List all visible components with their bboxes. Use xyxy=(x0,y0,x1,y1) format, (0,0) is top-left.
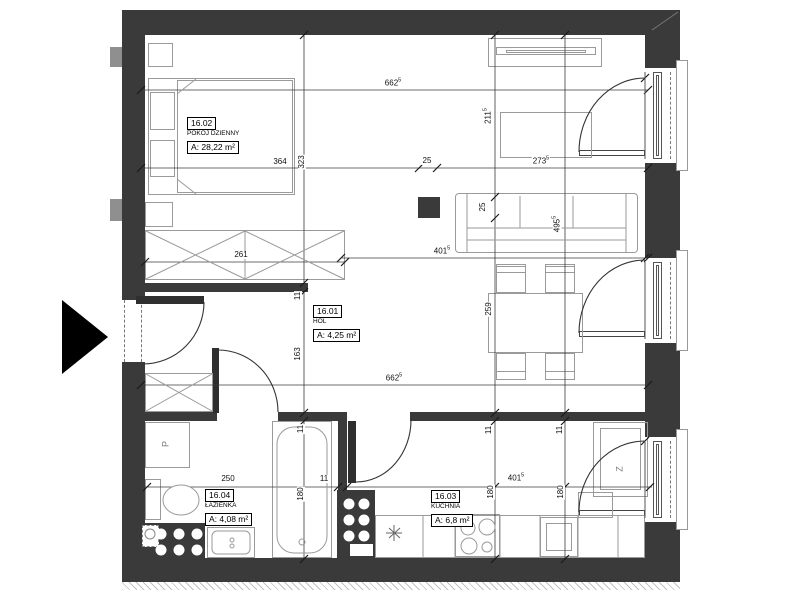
dimension-label: 163 xyxy=(294,346,302,361)
dimension-label: 11 xyxy=(297,424,305,434)
exterior-wall-stub xyxy=(110,199,122,221)
kitchen-cabinet xyxy=(578,492,613,518)
entrance-arrow-icon xyxy=(62,300,108,374)
dimension-label: 250 xyxy=(220,475,235,483)
dimension-label: 180 xyxy=(557,484,565,499)
balcony-door-leaf-mid xyxy=(579,331,645,337)
nightstand-bottom xyxy=(145,202,173,227)
dimension-label: 2115 xyxy=(484,107,493,125)
wall-bathroom-top-right xyxy=(278,412,347,421)
dimension-label: 6625 xyxy=(384,79,402,88)
wall-hall-living xyxy=(122,283,308,292)
hall-cabinet xyxy=(145,373,213,412)
dishwasher-inner xyxy=(546,523,572,551)
kitchen-door-leaf xyxy=(348,421,356,483)
wall-top xyxy=(122,10,672,35)
room-area: A: 4,08 m² xyxy=(205,513,252,526)
room-label-hall: 16.01HOLA: 4,25 m² xyxy=(313,302,360,343)
appliance-label: P xyxy=(162,440,171,448)
nightstand-top xyxy=(148,43,173,67)
entry-threshold-dash xyxy=(124,300,125,362)
bed-pillow xyxy=(150,140,175,177)
room-area: A: 28,22 m² xyxy=(187,141,239,154)
kitchen-door-arc xyxy=(356,420,411,482)
dimension-label: 4015 xyxy=(433,247,451,256)
room-name: POKÓJ DZIENNY xyxy=(187,131,239,138)
room-name: ŁAZIENKA xyxy=(205,503,252,510)
room-area: A: 6,8 m² xyxy=(431,514,473,527)
chair-back xyxy=(496,264,526,273)
wall-bottom xyxy=(122,558,680,582)
dimension-label: 259 xyxy=(485,301,493,316)
dimension-label: 323 xyxy=(298,154,306,169)
dimension-label: 364 xyxy=(272,158,287,166)
floor-drain xyxy=(142,525,159,547)
balcony-slab-top xyxy=(676,60,688,171)
balcony-slab-mid xyxy=(676,250,688,351)
dimension-label: 6625 xyxy=(385,374,403,383)
dimension-label: 180 xyxy=(487,484,495,499)
column xyxy=(418,197,440,218)
exterior-hatch xyxy=(122,582,680,590)
floor-plan: 6625364252735261401566252501140153232115… xyxy=(0,0,797,600)
wall-bathroom-kitchen xyxy=(338,412,347,492)
bathroom-sink xyxy=(207,527,255,558)
exterior-wall-stub xyxy=(110,47,122,67)
window-living-top-dashline xyxy=(670,72,671,159)
wall-right-bottom xyxy=(645,522,680,558)
dimension-label: 261 xyxy=(233,251,248,259)
dimension-label: 25 xyxy=(479,202,487,213)
entry-threshold-dash xyxy=(141,300,142,362)
dimension-label: 4955 xyxy=(553,215,562,233)
dimension-label: 4015 xyxy=(507,474,525,483)
window-kitchen-dashline xyxy=(670,441,671,518)
room-label-kitchen: 16.03KUCHNIAA: 6,8 m² xyxy=(431,487,473,528)
room-area: A: 4,25 m² xyxy=(313,329,360,342)
dimension-label: 180 xyxy=(297,486,305,501)
room-number: 16.04 xyxy=(205,489,234,502)
room-number: 16.01 xyxy=(313,305,342,318)
room-number: 16.03 xyxy=(431,490,460,503)
wall-bathroom-top-left xyxy=(122,412,217,421)
chair-back xyxy=(545,371,575,380)
appliance-label: Z xyxy=(616,465,625,473)
dimension-label: 2735 xyxy=(532,157,550,166)
kitchen-counter xyxy=(375,515,645,558)
toilet-tank xyxy=(145,479,161,520)
room-label-bathroom: 16.04ŁAZIENKAA: 4,08 m² xyxy=(205,486,252,527)
wall-left-upper xyxy=(122,10,145,300)
room-name: HOL xyxy=(313,319,360,326)
window-living-bottom-glazing xyxy=(656,265,659,336)
dimension-label: 11 xyxy=(294,291,302,301)
chair-back xyxy=(496,371,526,380)
dimension-label: 11 xyxy=(319,475,329,483)
wall-right-mid1 xyxy=(645,163,680,258)
balcony-slab-kitchen xyxy=(676,429,688,530)
entry-door-arc xyxy=(143,302,204,364)
balcony-door-arc-mid xyxy=(579,260,645,333)
bathroom-door-arc xyxy=(218,350,278,412)
room-label-living: 16.02POKÓJ DZIENNYA: 28,22 m² xyxy=(187,114,239,155)
dimension-label: 11 xyxy=(485,425,493,435)
bathroom-door-leaf xyxy=(212,348,219,413)
dimension-label: 11 xyxy=(556,425,564,435)
wall-right-corner xyxy=(645,10,680,68)
kitchen-shaft xyxy=(337,490,375,558)
wall-right-mid2 xyxy=(645,343,680,437)
window-living-bottom-dashline xyxy=(670,262,671,339)
chair-back xyxy=(545,264,575,273)
entry-door-leaf xyxy=(136,296,204,304)
tv-screen xyxy=(506,50,586,53)
wall-kitchen-top xyxy=(410,412,648,421)
toilet-bowl-icon xyxy=(163,485,199,515)
bed-pillow xyxy=(150,92,175,130)
dimension-label: 25 xyxy=(422,157,433,165)
room-name: KUCHNIA xyxy=(431,504,473,511)
window-living-top-glazing xyxy=(656,75,659,156)
window-kitchen-glazing xyxy=(656,444,659,515)
fridge xyxy=(600,428,641,490)
dining-table xyxy=(488,293,583,353)
room-number: 16.02 xyxy=(187,117,216,130)
coffee-table xyxy=(500,112,592,158)
